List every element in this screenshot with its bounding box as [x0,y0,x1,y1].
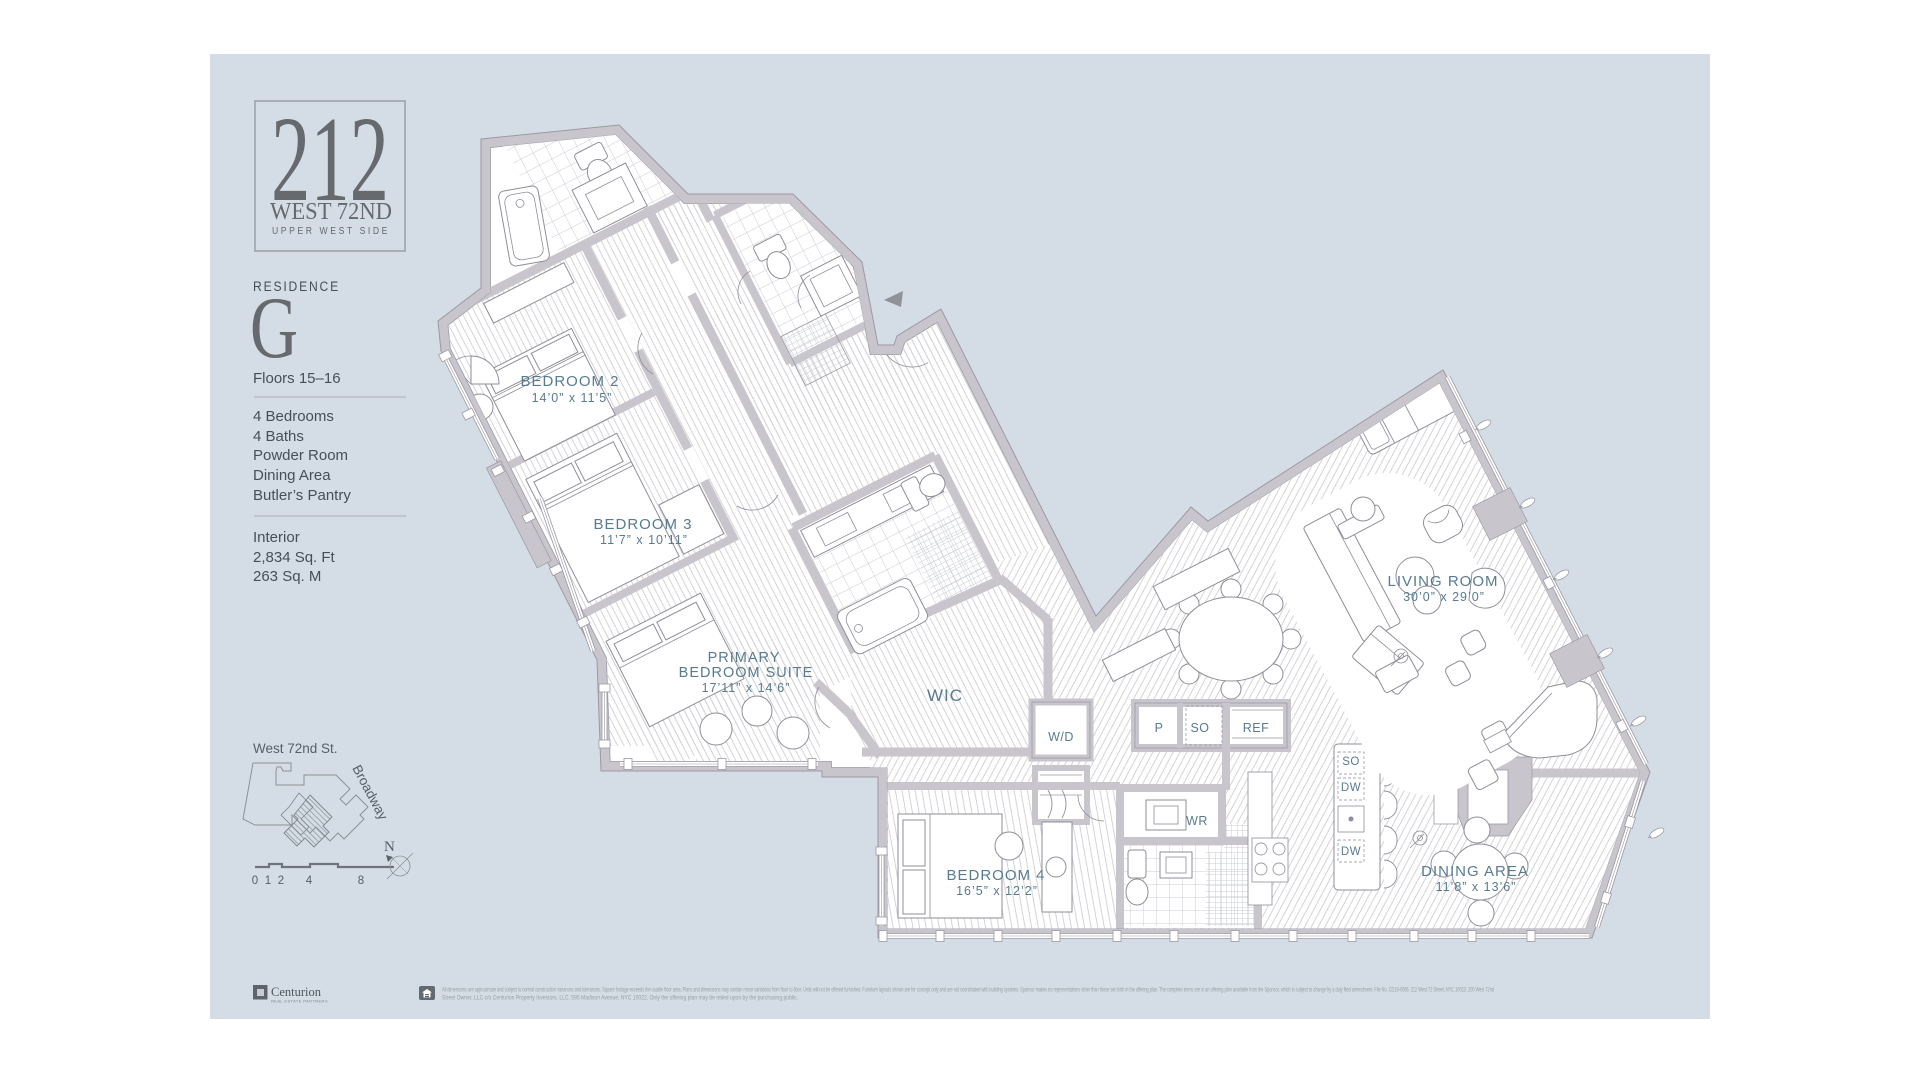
svg-text:P: P [1155,721,1164,735]
svg-text:Powder Room: Powder Room [253,447,348,464]
svg-text:Floors 15–16: Floors 15–16 [253,370,341,387]
svg-text:4 Bedrooms: 4 Bedrooms [253,408,334,425]
svg-text:30’0” x 29’0”: 30’0” x 29’0” [1403,590,1485,604]
svg-text:263 Sq. M: 263 Sq. M [253,568,321,585]
svg-text:DINING AREA: DINING AREA [1421,863,1529,880]
svg-text:W/D: W/D [1048,730,1074,744]
svg-text:WIC: WIC [927,686,963,705]
svg-text:BEDROOM 4: BEDROOM 4 [946,867,1045,884]
svg-text:G: G [250,280,298,377]
svg-text:Butler’s Pantry: Butler’s Pantry [253,487,351,504]
svg-text:2: 2 [278,875,284,887]
svg-text:WR: WR [1186,814,1208,828]
svg-text:BEDROOM 3: BEDROOM 3 [593,516,692,533]
svg-text:2,834 Sq. Ft: 2,834 Sq. Ft [253,549,336,566]
svg-text:SO: SO [1190,721,1209,735]
svg-text:Street Owner, LLC c/o Centurio: Street Owner, LLC c/o Centurion Property… [442,995,798,1002]
svg-text:West 72nd St.: West 72nd St. [253,741,338,756]
svg-text:All dimensions are approximate: All dimensions are approximate and subje… [442,987,1494,994]
svg-text:Interior: Interior [253,529,300,546]
svg-text:REF: REF [1243,721,1270,735]
svg-text:17’11” x 14’6”: 17’11” x 14’6” [702,681,791,695]
svg-text:11’8” x 13’6”: 11’8” x 13’6” [1436,880,1517,894]
svg-text:0: 0 [252,875,258,887]
svg-text:SO: SO [1342,756,1360,768]
svg-text:REAL ESTATE PARTNERS: REAL ESTATE PARTNERS [271,999,328,1004]
svg-text:8: 8 [358,875,364,887]
svg-text:14’0” x 11’5”: 14’0” x 11’5” [532,391,613,405]
svg-text:WEST 72ND: WEST 72ND [270,199,392,225]
svg-text:11’7” x 10’11”: 11’7” x 10’11” [600,533,688,547]
svg-text:Centurion: Centurion [271,985,322,999]
svg-text:DW: DW [1341,846,1361,858]
svg-text:PRIMARY: PRIMARY [708,650,781,666]
svg-text:N: N [384,839,395,855]
svg-text:DW: DW [1341,782,1361,794]
svg-text:Dining Area: Dining Area [253,467,331,484]
svg-text:4: 4 [306,875,313,887]
svg-text:4 Baths: 4 Baths [253,428,304,445]
svg-text:BEDROOM SUITE: BEDROOM SUITE [679,665,814,681]
svg-text:LIVING ROOM: LIVING ROOM [1387,573,1498,590]
svg-text:1: 1 [265,875,271,887]
svg-text:BEDROOM 2: BEDROOM 2 [520,373,619,390]
svg-text:UPPER WEST SIDE: UPPER WEST SIDE [272,226,390,237]
svg-text:16’5” x 12’2”: 16’5” x 12’2” [956,884,1038,898]
